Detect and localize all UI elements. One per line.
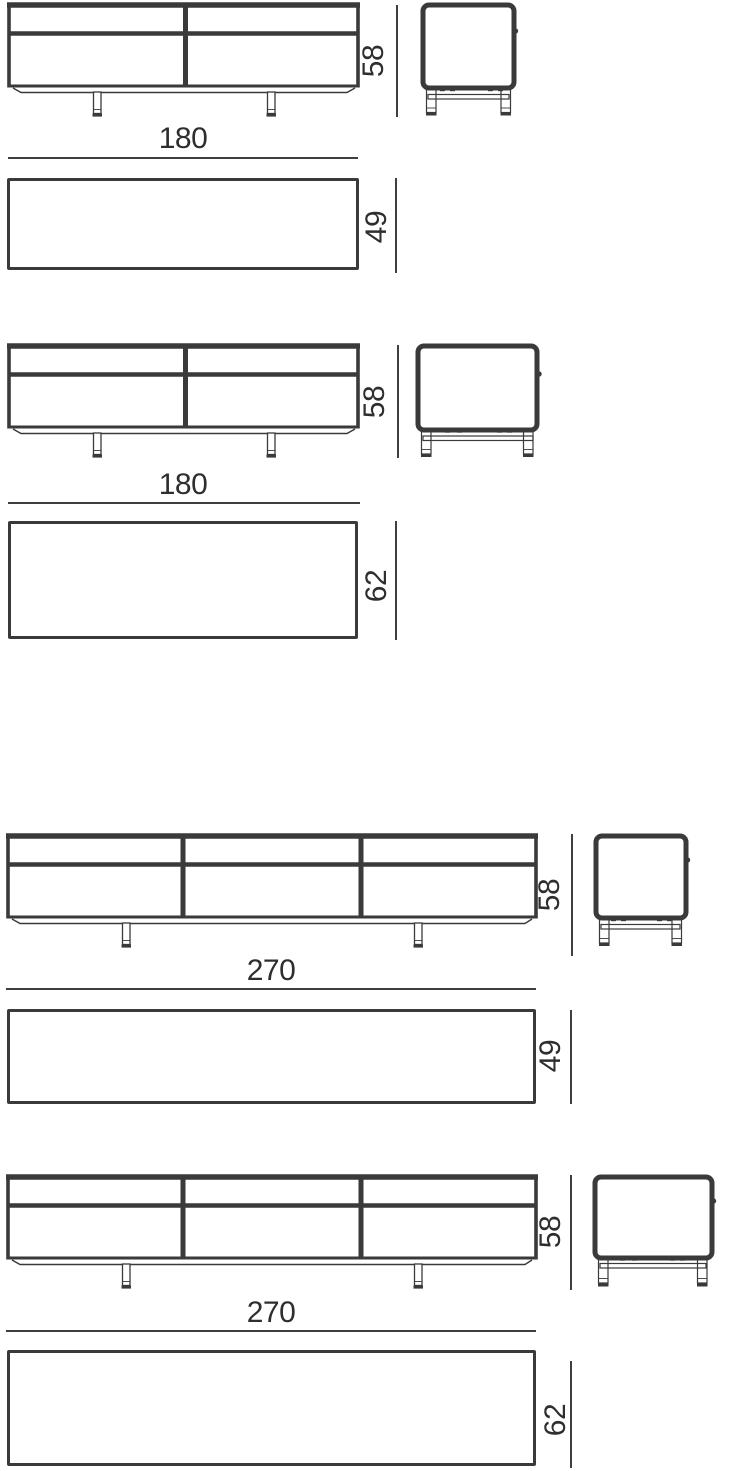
width-dimension-line <box>8 502 360 504</box>
height-dimension-line <box>570 1175 572 1290</box>
height-dimension-line <box>396 5 398 117</box>
depth-dimension-line <box>395 521 397 640</box>
drawer-knob-icon <box>513 28 518 33</box>
width-dimension-label: 180 <box>123 122 243 156</box>
side-view-sideboard-depth62 <box>415 343 543 459</box>
depth-dimension-label: 49 <box>360 167 394 287</box>
width-dimension-label: 270 <box>211 954 331 988</box>
front-view-sideboard-270x58-depth62 <box>6 1174 538 1290</box>
depth-dimension-line <box>395 178 397 273</box>
front-view-sideboard-180x58-depth62 <box>7 343 360 459</box>
side-view-sideboard-depth62 <box>592 1174 718 1290</box>
height-dimension-line <box>397 345 399 458</box>
width-dimension-label: 180 <box>123 468 243 502</box>
height-dimension-label: 58 <box>533 835 567 955</box>
depth-dimension-line <box>570 1010 572 1104</box>
depth-dimension-label: 49 <box>534 996 568 1116</box>
depth-dimension-label: 62 <box>539 1360 573 1471</box>
plan-view-sideboard-270x49 <box>7 1009 536 1104</box>
drawer-knob-icon <box>685 857 690 862</box>
height-dimension-label: 58 <box>357 1 391 121</box>
plan-view-sideboard-270x62 <box>7 1350 536 1466</box>
plan-view-sideboard-180x49 <box>7 178 359 270</box>
width-dimension-line <box>6 988 536 990</box>
front-view-sideboard-180x58-depth49 <box>7 2 360 118</box>
drawer-knob-icon <box>536 371 541 376</box>
width-dimension-label: 270 <box>211 1296 331 1330</box>
depth-dimension-label: 62 <box>360 526 394 646</box>
height-dimension-line <box>571 834 573 956</box>
side-view-sideboard-depth49 <box>420 2 520 118</box>
height-dimension-label: 58 <box>358 342 392 462</box>
plan-view-sideboard-180x62 <box>8 521 358 639</box>
side-view-sideboard-depth49 <box>593 833 691 949</box>
width-dimension-line <box>6 1330 536 1332</box>
width-dimension-line <box>8 157 358 159</box>
furniture-dimension-diagram: 58 180 49 <box>0 0 729 1471</box>
drawer-knob-icon <box>711 1198 716 1203</box>
front-view-sideboard-270x58-depth49 <box>6 833 538 949</box>
height-dimension-label: 58 <box>534 1172 568 1292</box>
